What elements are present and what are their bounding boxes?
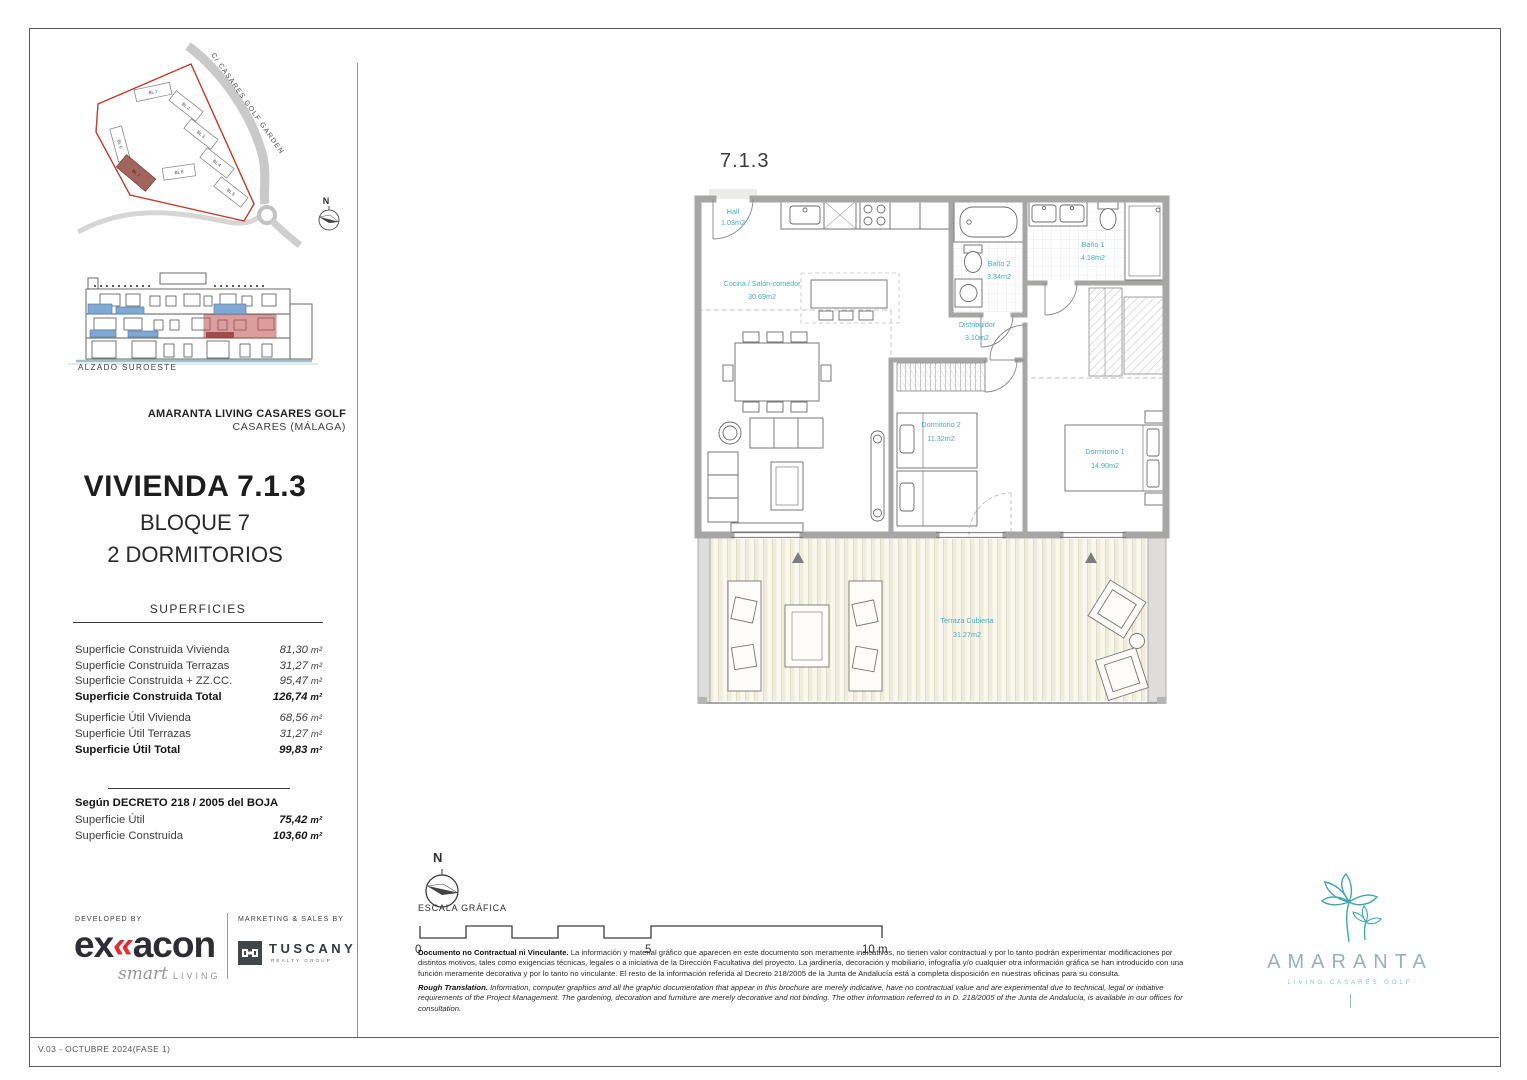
row-value: 75,42 [279, 814, 307, 826]
exacon-pre: ex [74, 924, 113, 965]
room-area-terrace: 31.27m2 [953, 630, 981, 639]
scale-caption: ESCALA GRÁFICA [418, 903, 507, 913]
table-row: Superficie Construida Terrazas31,27m² [75, 659, 322, 675]
row-value: 31,27 [280, 660, 308, 672]
table-row: Superficie Construida Vivienda81,30m² [75, 643, 322, 659]
amaranta-logo: AMARANTA LIVING CASARES GOLF [1255, 872, 1445, 1008]
marketing-caption: MARKETING & SALES BY [238, 916, 344, 923]
nightstand [1145, 411, 1163, 423]
scale-north-label: N [433, 850, 442, 865]
row-label: Superficie Construida [75, 829, 183, 845]
highlighted-block: BL 7 [116, 155, 155, 192]
row-label: Superficie Útil Total [75, 743, 180, 759]
row-unit: m² [310, 745, 322, 756]
exacon-post: acon [133, 924, 215, 965]
table-row-total: Superficie Construida Total126,74m² [75, 690, 322, 706]
row-value: 31,27 [280, 728, 308, 740]
developed-by-caption: DEVELOPED BY [75, 916, 142, 923]
fridge [920, 201, 951, 229]
outdoor-table [785, 605, 829, 667]
tv-sideboard [731, 523, 803, 532]
room-label-bedroom1: Dormitorio 1 [1085, 447, 1124, 456]
room-area-hall: 1.03m2 [721, 218, 745, 227]
row-unit: m² [311, 676, 322, 687]
row-unit: m² [310, 815, 322, 826]
logo-separator [227, 913, 228, 979]
site-plan: BL 1 BL 2 BL 3 BL 4 BL 5 BL 6 BL 7 BL 8 … [58, 42, 358, 257]
pillow [900, 425, 914, 453]
street-label: C/ CASARES GOLF GARDEN [209, 52, 285, 156]
pillow [1147, 429, 1159, 456]
footer-divider [30, 1037, 1499, 1038]
tagline-script: smart [118, 964, 168, 984]
row-label: Superficie Construida Terrazas [75, 659, 229, 675]
wardrobe [897, 363, 985, 391]
stool [839, 311, 853, 320]
unit-title-block: VIVIENDA 7.1.3 BLOQUE 7 2 DORMITORIOS [40, 470, 350, 568]
decreto-table: Según DECRETO 218 / 2005 del BOJA Superf… [75, 796, 322, 844]
room-area-bedroom1: 14.90m2 [1091, 461, 1119, 470]
roads [78, 46, 300, 245]
decreto-rule [108, 788, 290, 789]
row-value: 103,60 [273, 830, 308, 842]
superficies-heading: SUPERFICIES [73, 602, 323, 616]
exacon-logo: ex«acon [74, 924, 215, 966]
room-area-bath2: 3.34m2 [987, 272, 1011, 281]
floor-plan: Hall 1.03m2 Cocina / Salón-comedor 30.69… [673, 185, 1185, 715]
room-label-hall: Hall [727, 207, 740, 216]
room-label-salon: Cocina / Salón-comedor [723, 279, 801, 288]
bedroom1-furniture [1065, 411, 1163, 505]
disclaimer-en: Rough Translation. Information, computer… [418, 983, 1191, 1014]
unit-block-label: BLOQUE 7 [40, 510, 350, 536]
row-unit: m² [311, 645, 322, 656]
disclaimer-en-text: Information, computer graphics and all t… [418, 983, 1183, 1013]
room-area-hallway: 3.10m2 [965, 333, 989, 342]
superficies-table: Superficie Construida Vivienda81,30m² Su… [75, 643, 322, 758]
chaise [708, 452, 738, 522]
site-compass-icon: N [319, 196, 339, 230]
row-unit: m² [311, 661, 322, 672]
bathtub [954, 202, 1023, 242]
project-name: AMARANTA LIVING CASARES GOLF [80, 408, 346, 421]
pillow [1147, 460, 1159, 487]
row-value: 95,47 [280, 675, 308, 687]
outdoor-side-table [1130, 634, 1145, 649]
elevation-caption: ALZADO SUROESTE [78, 363, 177, 372]
row-label: Superficie Construida Vivienda [75, 643, 229, 659]
kitchen-island [811, 280, 887, 308]
kitchen-hob [860, 201, 890, 229]
room-label-bath2: Baño 2 [988, 259, 1011, 268]
tuscany-icon [238, 941, 262, 965]
version-label: V.03 - OCTUBRE 2024(FASE 1) [38, 1044, 170, 1054]
table-row-total: Superficie Útil Total99,83m² [75, 743, 322, 759]
row-label: Superficie Construida + ZZ.CC. [75, 674, 232, 690]
nightstand [1145, 493, 1163, 505]
plan-unit-label: 7.1.3 [720, 150, 769, 173]
tuscany-sub: REALTY GROUP [271, 958, 356, 963]
table-row: Superficie Útil Vivienda68,56m² [75, 711, 322, 727]
row-value: 68,56 [280, 712, 308, 724]
stool [819, 311, 833, 320]
project-header: AMARANTA LIVING CASARES GOLF CASARES (MÁ… [80, 408, 346, 434]
table-row: Superficie Construida103,60m² [75, 829, 322, 845]
dining-table [735, 343, 819, 401]
unit-title: VIVIENDA 7.1.3 [40, 470, 350, 504]
tuscany-logo: TUSCANY REALTY GROUP [238, 941, 356, 965]
table-row: Superficie Útil75,42m² [75, 813, 322, 829]
row-value: 99,83 [279, 744, 307, 756]
outdoor-sofa [849, 581, 882, 691]
wardrobe [1089, 288, 1122, 376]
room-area-bath1: 4.18m2 [1081, 253, 1105, 262]
exacon-tagline: smartLIVING [118, 964, 220, 984]
project-location: CASARES (MÁLAGA) [80, 421, 346, 434]
scale-bar [418, 918, 888, 944]
shower [1125, 202, 1164, 280]
table-row: Superficie Construida + ZZ.CC.95,47m² [75, 674, 322, 690]
amaranta-sub: LIVING CASARES GOLF [1255, 980, 1445, 986]
brochure-page: V.03 - OCTUBRE 2024(FASE 1) BL 1 BL 2 BL… [0, 0, 1527, 1080]
amaranta-wordmark: AMARANTA [1255, 951, 1445, 974]
row-value: 126,74 [273, 691, 308, 703]
washing-machine [955, 279, 982, 307]
row-unit: m² [310, 692, 322, 703]
room-label-hallway: Distribuidor [959, 320, 996, 329]
site-north-label: N [323, 196, 330, 206]
room-label-bath1: Baño 1 [1082, 240, 1105, 249]
elevation-facade [86, 273, 312, 359]
pillow [900, 483, 914, 511]
sofa [750, 418, 823, 448]
table-row: Superficie Útil Terrazas31,27m² [75, 727, 322, 743]
elevation-drawing [62, 256, 322, 374]
room-label-terrace: Terraza Cubierta [940, 616, 993, 625]
row-label: Superficie Útil Vivienda [75, 711, 191, 727]
superficies-rule [73, 622, 323, 623]
wardrobe [1124, 297, 1164, 374]
room-area-bedroom2: 11.32m2 [927, 434, 954, 443]
dining-set [723, 332, 831, 412]
amaranta-tick [1350, 994, 1351, 1008]
tagline-caps: LIVING [173, 971, 221, 981]
tuscany-brand: TUSCANY [269, 941, 356, 956]
row-label: Superficie Útil Terrazas [75, 727, 191, 743]
row-label: Superficie Útil [75, 813, 145, 829]
row-unit: m² [311, 713, 322, 724]
row-unit: m² [311, 729, 322, 740]
radiator [871, 431, 884, 521]
elevation-highlight-unit [204, 315, 276, 338]
disclaimer-en-lead: Rough Translation. [418, 983, 488, 992]
amaranta-flower-icon [1307, 872, 1393, 944]
room-label-bedroom2: Dormitorio 2 [921, 420, 960, 429]
row-unit: m² [310, 831, 322, 842]
disclaimer-es-lead: Documento no Contractual ni Vinculante. [418, 948, 569, 957]
row-value: 81,30 [280, 644, 308, 656]
room-area-salon: 30.69m2 [748, 292, 776, 301]
row-label: Superficie Construida Total [75, 690, 222, 706]
outdoor-sofa [728, 581, 761, 691]
unit-type-label: 2 DORMITORIOS [40, 542, 350, 568]
stool [859, 311, 873, 320]
decreto-heading: Según DECRETO 218 / 2005 del BOJA [75, 796, 322, 811]
disclaimer-es: Documento no Contractual ni Vinculante. … [418, 948, 1191, 979]
